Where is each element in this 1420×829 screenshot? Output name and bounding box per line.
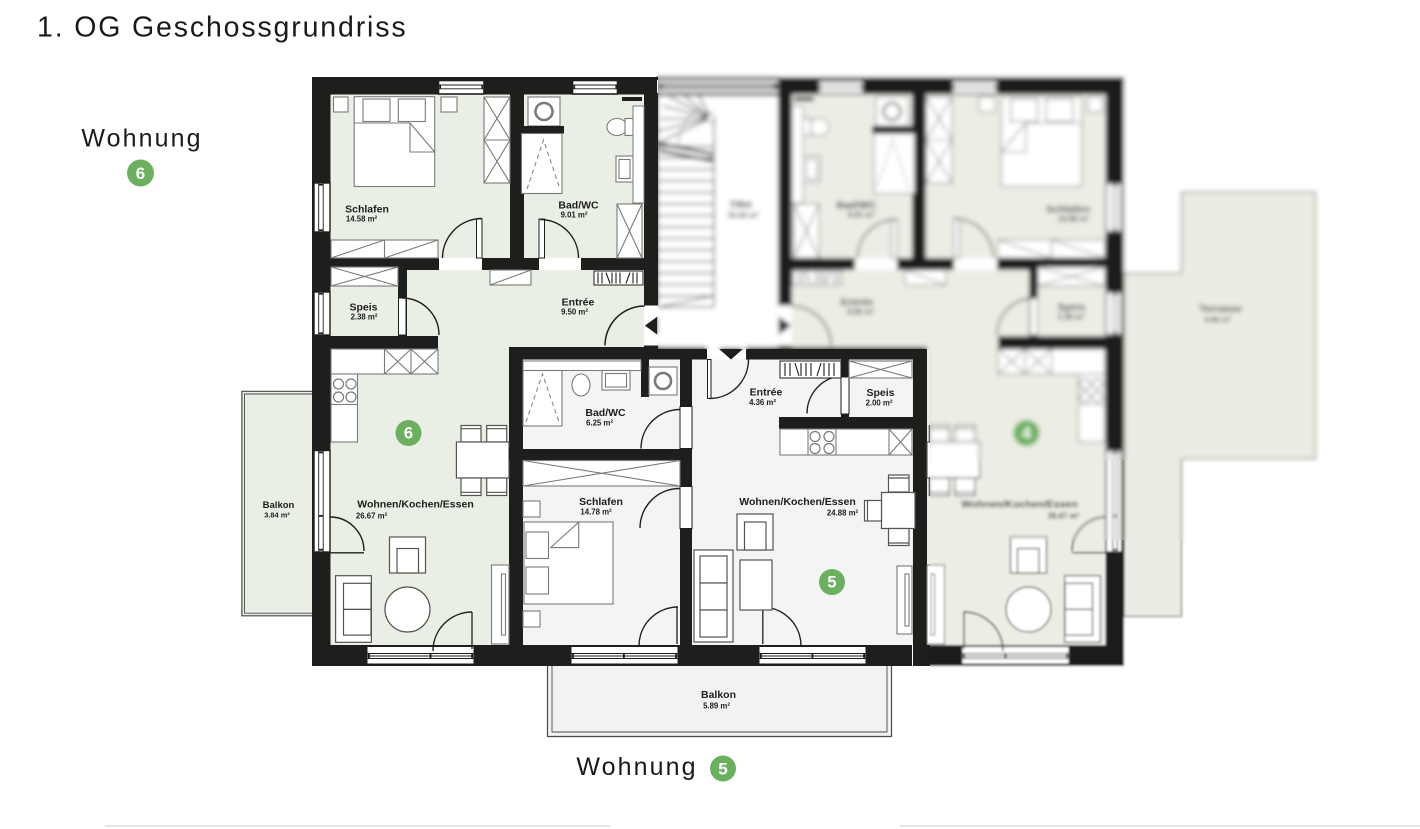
svg-text:Schlafen: Schlafen xyxy=(579,496,623,508)
svg-text:Entrée: Entrée xyxy=(750,387,783,399)
svg-text:2.00 m²: 2.00 m² xyxy=(866,399,893,408)
svg-text:14.78 m²: 14.78 m² xyxy=(580,508,612,517)
svg-text:6: 6 xyxy=(136,164,145,183)
svg-text:Wohnung: Wohnung xyxy=(81,125,202,153)
svg-text:Bad/WC: Bad/WC xyxy=(585,407,626,419)
svg-text:24.88 m²: 24.88 m² xyxy=(827,509,859,518)
svg-text:6.25 m²: 6.25 m² xyxy=(586,419,613,428)
svg-text:1. OG Geschossgrundriss: 1. OG Geschossgrundriss xyxy=(37,12,407,44)
svg-text:14.58 m²: 14.58 m² xyxy=(346,215,378,224)
svg-text:Wohnen/Kochen/Essen: Wohnen/Kochen/Essen xyxy=(357,499,474,511)
svg-text:2.38 m²: 2.38 m² xyxy=(351,313,378,322)
svg-text:9.01 m²: 9.01 m² xyxy=(561,211,588,220)
svg-text:6: 6 xyxy=(404,425,413,443)
svg-text:9.50 m²: 9.50 m² xyxy=(561,308,588,317)
svg-text:5: 5 xyxy=(718,760,727,779)
svg-text:Speis: Speis xyxy=(866,387,894,399)
svg-text:5.89 m²: 5.89 m² xyxy=(703,702,730,711)
svg-text:Balkon: Balkon xyxy=(701,689,736,701)
svg-text:3.84 m²: 3.84 m² xyxy=(264,511,290,520)
svg-text:5: 5 xyxy=(827,574,836,592)
svg-text:Wohnen/Kochen/Essen: Wohnen/Kochen/Essen xyxy=(739,496,856,508)
svg-text:Wohnung: Wohnung xyxy=(576,753,697,781)
svg-text:4.36 m²: 4.36 m² xyxy=(749,398,776,407)
svg-text:Balkon: Balkon xyxy=(263,500,295,511)
svg-text:26.67 m²: 26.67 m² xyxy=(356,512,388,521)
